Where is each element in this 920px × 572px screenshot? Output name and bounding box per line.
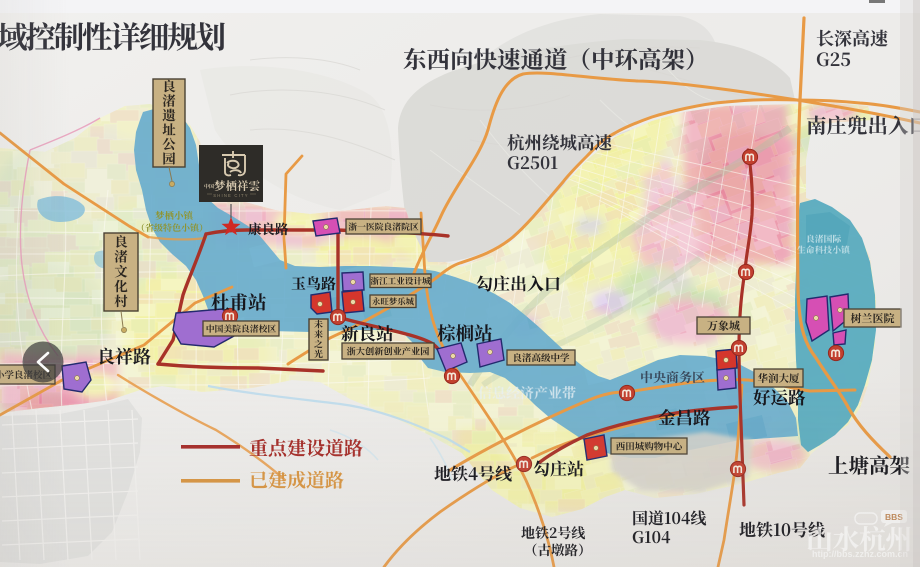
svg-text:SHINE CITY: SHINE CITY	[213, 193, 249, 198]
